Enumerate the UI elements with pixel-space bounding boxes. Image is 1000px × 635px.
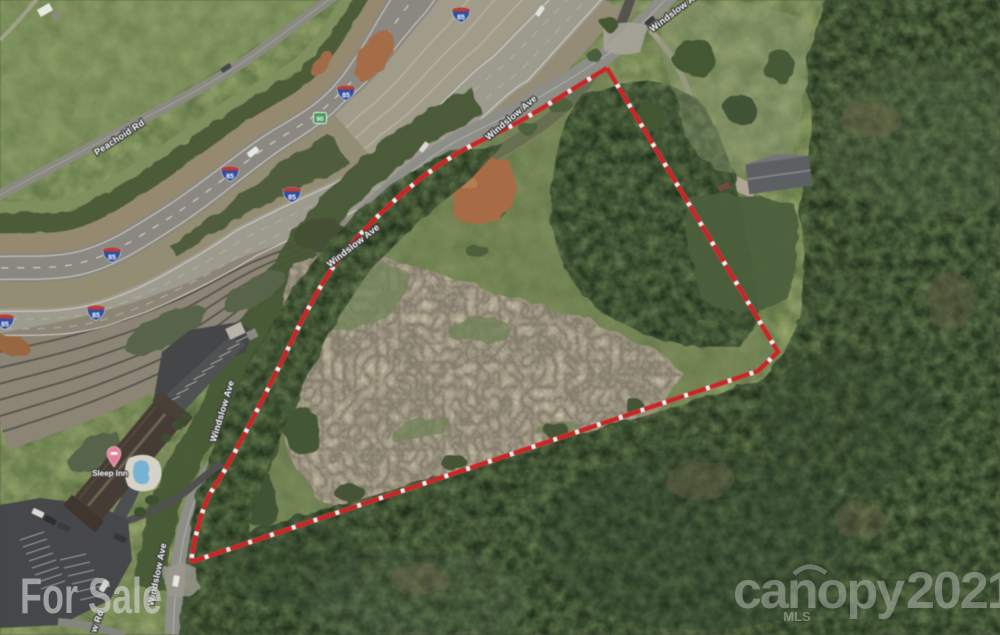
svg-text:85: 85 bbox=[108, 254, 116, 261]
svg-text:Sleep Inn: Sleep Inn bbox=[92, 469, 128, 478]
svg-text:85: 85 bbox=[226, 173, 234, 180]
svg-text:85: 85 bbox=[457, 14, 465, 21]
svg-text:2021: 2021 bbox=[906, 562, 1000, 620]
svg-text:For Sale: For Sale bbox=[20, 569, 162, 624]
svg-text:90: 90 bbox=[316, 116, 324, 123]
svg-text:canopy: canopy bbox=[733, 562, 905, 620]
svg-text:85: 85 bbox=[342, 92, 350, 99]
svg-text:85: 85 bbox=[92, 312, 100, 319]
svg-text:MLS: MLS bbox=[783, 609, 811, 624]
svg-text:85: 85 bbox=[1, 321, 9, 328]
svg-text:85: 85 bbox=[288, 194, 296, 201]
